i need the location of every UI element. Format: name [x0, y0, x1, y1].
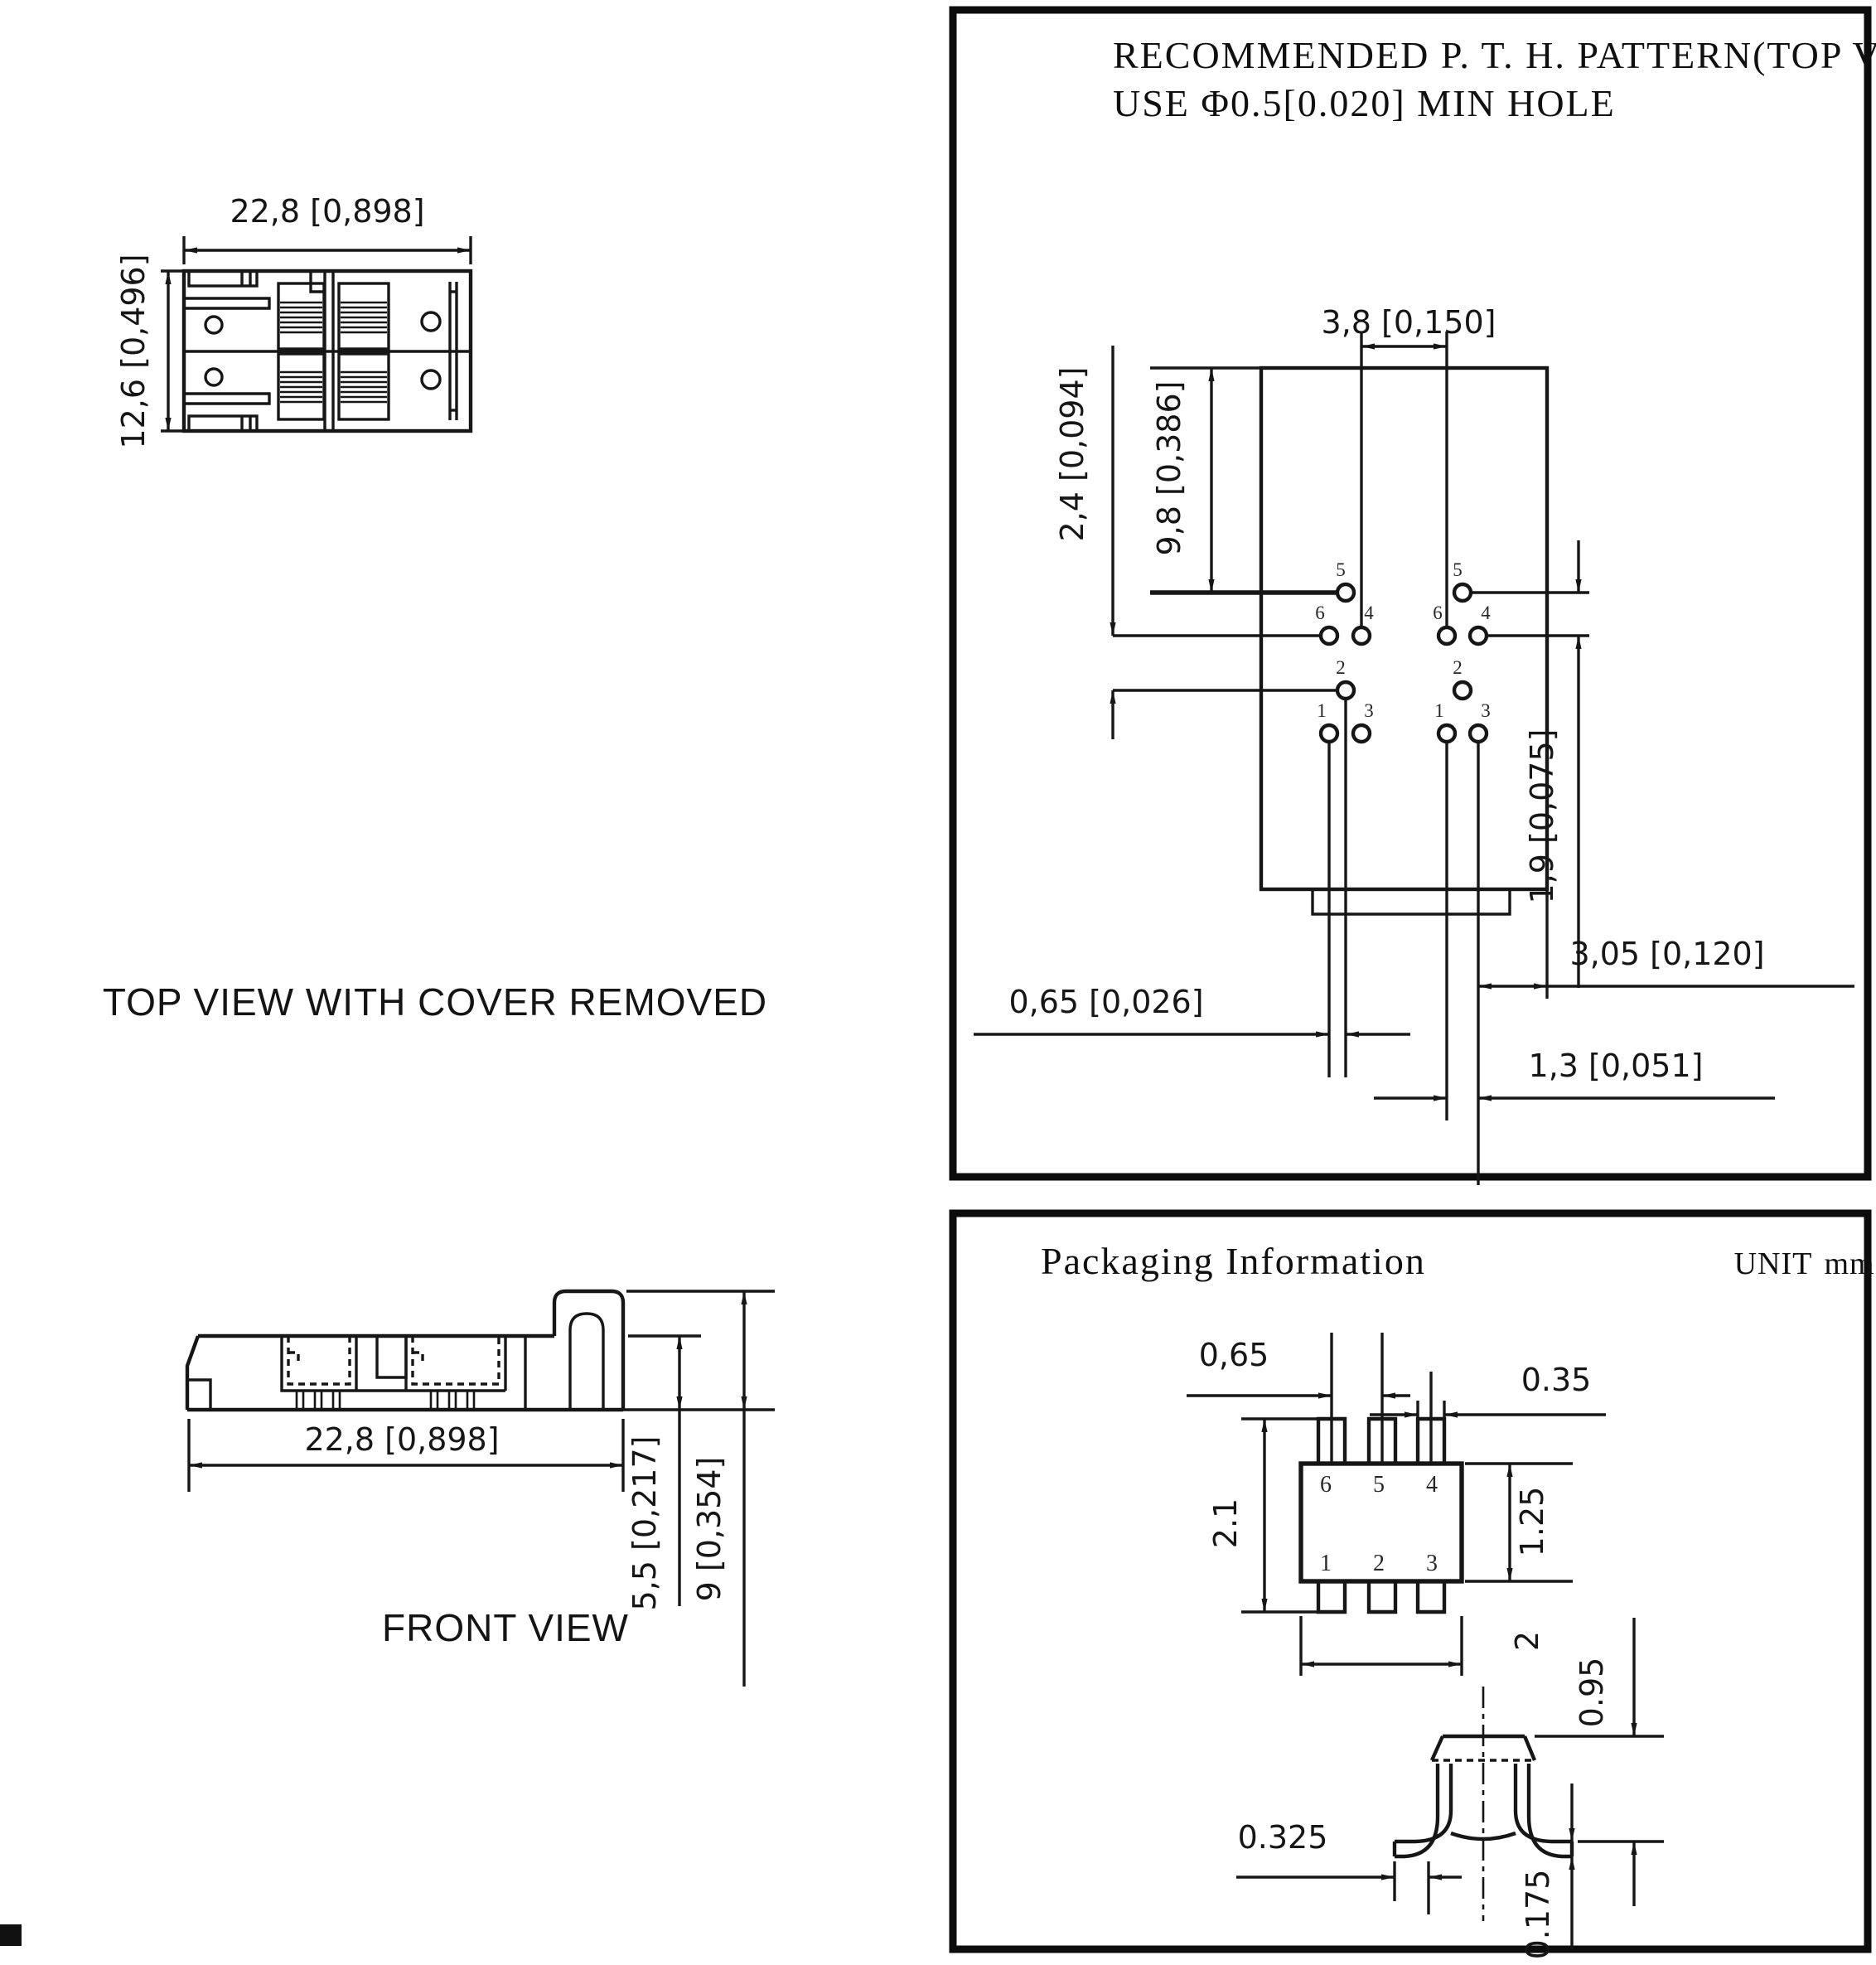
pth-col-gap-right-dim: 1,3 [0,051] — [1529, 1048, 1704, 1084]
pkg-pin-width-dim: 0.35 — [1521, 1362, 1592, 1398]
package-pin-bottom — [1318, 1581, 1345, 1612]
pin-number: 6 — [1315, 603, 1325, 623]
body-left-step — [187, 1380, 210, 1410]
front-body-height-dim: 5,5 [0,217] — [626, 1436, 663, 1611]
coil-block-upper-left — [278, 283, 324, 349]
coil-block-lower-left — [278, 354, 324, 419]
pth-hole-3 — [1353, 725, 1370, 742]
pin-number: 3 — [1364, 700, 1374, 721]
packaging-title: Packaging Information — [1041, 1240, 1426, 1282]
pth-hole-3 — [1470, 725, 1487, 742]
pkg-bottom-arc — [1451, 1833, 1516, 1839]
drawing-canvas: 22,8 [0,898] 12,6 [0,496] — [0, 0, 1876, 1965]
pkg-pin-number: 3 — [1426, 1551, 1438, 1576]
pth-edge-gap-dim: 3,05 [0,120] — [1569, 936, 1764, 972]
hole-group-right: 5 6 4 2 1 3 — [1433, 559, 1491, 742]
pin-number: 4 — [1364, 603, 1374, 623]
pth-hole-4 — [1470, 627, 1487, 644]
center-tongue — [377, 1336, 406, 1377]
armature-arm — [184, 394, 269, 404]
pivot-hole — [205, 369, 222, 385]
unit-value: mm — [1824, 1246, 1874, 1281]
corner-tab — [189, 271, 257, 286]
pkg-pin-number: 4 — [1426, 1472, 1438, 1498]
pth-col-gap-left-dim: 0,65 [0,026] — [1008, 984, 1203, 1020]
pth-title-line1: RECOMMENDED P. T. H. PATTERN(TOP VIEW) — [1113, 34, 1876, 76]
pin-number: 1 — [1434, 700, 1444, 721]
mount-tab-slot — [570, 1314, 603, 1410]
pth-hole-4 — [1353, 627, 1370, 644]
body-left-edge — [187, 1336, 198, 1410]
pkg-pin-number: 2 — [1373, 1551, 1385, 1576]
pkg-total-height-dim: 2.1 — [1207, 1498, 1244, 1548]
pth-body-height-dim: 9,8 [0,386] — [1151, 381, 1187, 556]
pkg-side — [1525, 1736, 1535, 1760]
pkg-pin-number: 1 — [1320, 1551, 1332, 1576]
pth-offset-dim: 2,4 [0,094] — [1054, 367, 1090, 542]
pth-hole-6 — [1438, 627, 1455, 644]
unit-label: UNIT — [1734, 1246, 1813, 1281]
pth-hole-1 — [1438, 725, 1455, 742]
corner-tab — [189, 416, 257, 431]
pkg-pitch-dim: 0,65 — [1199, 1337, 1269, 1373]
pin-stubs — [297, 1391, 474, 1410]
packaging-panel: Packaging Information UNIT mm 6 5 4 1 2 … — [953, 1213, 1875, 1959]
pin-number: 6 — [1433, 603, 1443, 623]
component-tab — [1313, 889, 1510, 914]
pkg-pin-number: 5 — [1373, 1472, 1385, 1498]
slot-inner-dashed — [413, 1336, 499, 1384]
pin-number: 2 — [1453, 657, 1463, 678]
coil-outline — [339, 283, 389, 349]
front-view-caption: FRONT VIEW — [382, 1606, 629, 1649]
front-total-height-dim: 9 [0,354] — [691, 1457, 728, 1602]
pkg-body-width-dim: 2 — [1509, 1631, 1545, 1651]
package-pin-bottom — [1369, 1581, 1395, 1612]
front-view-drawing: 22,8 [0,898] 5,5 [0,217] 9 [0,354] FRONT… — [187, 1291, 775, 1687]
pth-hole-2 — [1337, 682, 1354, 699]
pivot-hole — [205, 317, 222, 333]
pkg-pin-number: 6 — [1320, 1472, 1332, 1498]
top-view-width-dim: 22,8 [0,898] — [230, 193, 424, 230]
pth-pitch-dim: 3,8 [0,150] — [1322, 304, 1496, 341]
armature-arm — [184, 298, 269, 308]
pth-hole-6 — [1321, 627, 1337, 644]
component-outline — [1261, 368, 1547, 889]
pin-number: 4 — [1481, 603, 1491, 623]
pkg-height-dim: 0.95 — [1574, 1658, 1610, 1728]
pin-number: 2 — [1336, 657, 1346, 678]
pth-hole-2 — [1454, 682, 1471, 699]
pth-hole-1 — [1321, 725, 1337, 742]
pth-hole-5 — [1337, 584, 1354, 601]
top-view-height-dim: 12,6 [0,496] — [115, 254, 152, 448]
mount-hole — [422, 370, 440, 389]
pin-number: 1 — [1317, 700, 1327, 721]
top-view-drawing: 22,8 [0,898] 12,6 [0,496] — [103, 193, 767, 1024]
pkg-foot-dim: 0.325 — [1238, 1819, 1328, 1856]
pin-number: 3 — [1481, 700, 1491, 721]
mount-tab-outline — [554, 1291, 623, 1410]
front-width-dim: 22,8 [0,898] — [304, 1421, 499, 1458]
pkg-side — [1432, 1736, 1443, 1760]
datasheet-page: 22,8 [0,898] 12,6 [0,496] — [0, 0, 1876, 1965]
pin-number: 5 — [1336, 559, 1346, 580]
package-pin-bottom — [1418, 1581, 1444, 1612]
top-view-caption: TOP VIEW WITH COVER REMOVED — [103, 980, 767, 1024]
pth-title-line2: USE Φ0.5[0.020] MIN HOLE — [1113, 82, 1616, 124]
coil-outline — [278, 283, 324, 349]
pin-number: 5 — [1453, 559, 1463, 580]
coil-block-lower-right — [339, 354, 389, 419]
pth-panel: RECOMMENDED P. T. H. PATTERN(TOP VIEW) U… — [953, 10, 1876, 1185]
pkg-lead-thickness-dim: 0.175 — [1520, 1870, 1556, 1960]
pth-hole-5 — [1454, 584, 1471, 601]
lead-left-inner — [1395, 1764, 1451, 1842]
page-corner-mark — [0, 1924, 22, 1946]
slot-base — [282, 1336, 505, 1391]
pth-row-gap-dim: 1,9 [0,075] — [1524, 729, 1560, 904]
lead-right-inner — [1516, 1764, 1572, 1842]
pkg-body-height-dim: 1.25 — [1514, 1487, 1550, 1557]
slot-step-dashed — [288, 1353, 298, 1366]
mount-hole — [422, 312, 440, 331]
coil-block-upper-right — [339, 283, 389, 349]
slot-step-dashed — [413, 1353, 423, 1366]
